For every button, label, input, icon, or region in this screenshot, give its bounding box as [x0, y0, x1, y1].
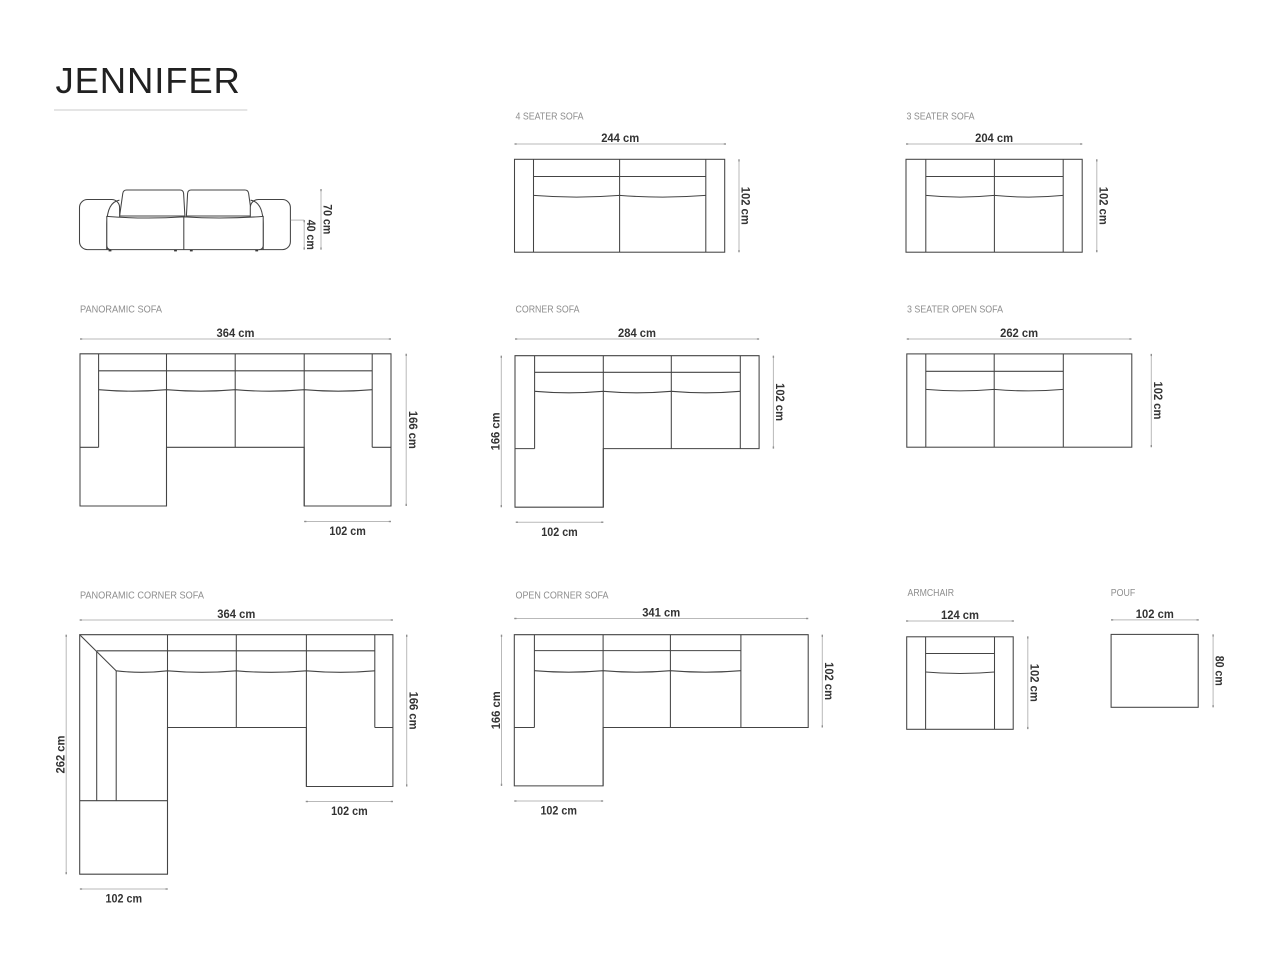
svg-text:CORNER SOFA: CORNER SOFA [516, 304, 580, 315]
svg-text:102 cm: 102 cm [541, 525, 578, 539]
svg-text:3 SEATER OPEN SOFA: 3 SEATER OPEN SOFA [907, 304, 1003, 315]
svg-text:102 cm: 102 cm [822, 662, 836, 700]
svg-text:JENNIFER: JENNIFER [56, 60, 241, 101]
svg-text:PANORAMIC SOFA: PANORAMIC SOFA [80, 304, 162, 315]
svg-text:124 cm: 124 cm [941, 608, 979, 622]
svg-text:102 cm: 102 cm [329, 524, 366, 538]
svg-text:40 cm: 40 cm [304, 220, 318, 250]
svg-text:70 cm: 70 cm [321, 204, 335, 234]
svg-text:102 cm: 102 cm [773, 383, 787, 421]
svg-text:284 cm: 284 cm [618, 326, 656, 340]
svg-text:102 cm: 102 cm [540, 804, 577, 818]
svg-text:166 cm: 166 cm [406, 692, 420, 730]
svg-text:3 SEATER SOFA: 3 SEATER SOFA [907, 112, 975, 123]
svg-text:244 cm: 244 cm [601, 131, 639, 145]
svg-text:102 cm: 102 cm [739, 187, 753, 225]
svg-text:102 cm: 102 cm [106, 892, 143, 906]
svg-text:364 cm: 364 cm [217, 607, 255, 621]
svg-text:166 cm: 166 cm [489, 412, 503, 450]
svg-text:166 cm: 166 cm [406, 411, 420, 449]
svg-text:ARMCHAIR: ARMCHAIR [908, 588, 955, 599]
svg-text:102 cm: 102 cm [331, 804, 368, 818]
svg-text:364 cm: 364 cm [217, 326, 255, 340]
svg-text:80 cm: 80 cm [1213, 656, 1227, 686]
svg-text:4 SEATER SOFA: 4 SEATER SOFA [516, 112, 584, 123]
svg-text:OPEN CORNER SOFA: OPEN CORNER SOFA [516, 591, 609, 602]
svg-text:262 cm: 262 cm [1000, 326, 1038, 340]
svg-text:102 cm: 102 cm [1151, 382, 1165, 420]
svg-text:PANORAMIC CORNER SOFA: PANORAMIC CORNER SOFA [80, 591, 204, 602]
svg-text:102 cm: 102 cm [1027, 664, 1041, 702]
svg-text:204 cm: 204 cm [975, 131, 1013, 145]
svg-text:POUF: POUF [1111, 588, 1136, 599]
svg-text:341 cm: 341 cm [642, 606, 680, 620]
svg-text:102 cm: 102 cm [1096, 187, 1110, 225]
svg-text:102 cm: 102 cm [1136, 607, 1174, 621]
svg-text:166 cm: 166 cm [489, 691, 503, 729]
svg-text:262 cm: 262 cm [54, 735, 68, 773]
